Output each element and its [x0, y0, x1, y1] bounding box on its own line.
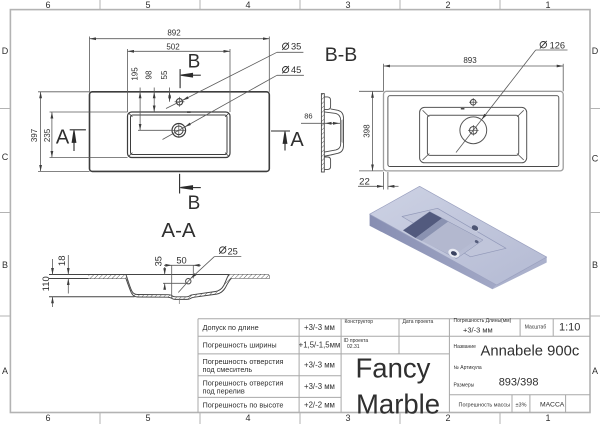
svg-text:2: 2 — [445, 413, 450, 423]
svg-text:2: 2 — [445, 0, 450, 10]
svg-text:22: 22 — [359, 176, 370, 187]
svg-text:+3/-3 мм: +3/-3 мм — [304, 323, 335, 332]
svg-text:35: 35 — [291, 42, 301, 52]
svg-text:Допуск по длине: Допуск по длине — [203, 323, 259, 332]
svg-text:126: 126 — [550, 40, 566, 50]
svg-text:A: A — [56, 127, 70, 149]
svg-text:397: 397 — [30, 128, 39, 142]
svg-text:Размеры: Размеры — [454, 383, 475, 389]
svg-text:±3%: ±3% — [516, 402, 527, 408]
svg-text:18: 18 — [57, 256, 68, 267]
svg-text:A: A — [2, 366, 8, 376]
svg-text:+2/-2 мм: +2/-2 мм — [304, 401, 335, 410]
svg-text:Marble: Marble — [356, 389, 440, 420]
svg-text:C: C — [592, 154, 599, 164]
svg-text:4: 4 — [245, 0, 250, 10]
svg-text:98: 98 — [145, 70, 154, 79]
svg-text:02.31: 02.31 — [347, 344, 360, 350]
svg-text:D: D — [2, 46, 9, 56]
svg-text:50: 50 — [176, 255, 186, 265]
svg-text:B: B — [592, 260, 598, 270]
svg-text:398: 398 — [362, 124, 371, 138]
svg-text:3: 3 — [345, 0, 350, 10]
svg-text:C: C — [2, 152, 9, 162]
svg-text:45: 45 — [291, 65, 301, 75]
svg-text:6: 6 — [45, 0, 50, 10]
svg-text:25: 25 — [228, 246, 238, 256]
svg-text:A: A — [290, 129, 304, 151]
svg-text:Fancy: Fancy — [356, 353, 431, 384]
svg-text:Дата проекта: Дата проекта — [403, 319, 434, 325]
svg-text:5: 5 — [145, 413, 150, 423]
svg-text:55: 55 — [160, 70, 169, 79]
svg-text:B-B: B-B — [325, 44, 358, 66]
svg-text:195: 195 — [131, 67, 140, 81]
svg-text:3: 3 — [345, 413, 350, 423]
svg-text:+3/-3 мм: +3/-3 мм — [304, 360, 335, 369]
svg-text:893/398: 893/398 — [499, 377, 539, 389]
svg-text:893: 893 — [463, 56, 477, 65]
svg-text:892: 892 — [167, 28, 181, 37]
svg-text:Погрешность массы: Погрешность массы — [459, 402, 511, 408]
svg-text:D: D — [592, 46, 599, 56]
svg-text:86: 86 — [304, 111, 312, 120]
svg-text:Погрешность ширины: Погрешность ширины — [203, 341, 277, 350]
svg-text:Annabele 900c: Annabele 900c — [481, 344, 580, 360]
svg-text:№ Артикула: № Артикула — [454, 365, 482, 371]
svg-text:B: B — [188, 193, 201, 214]
svg-text:+3/-3 мм: +3/-3 мм — [304, 382, 335, 391]
svg-text:5: 5 — [145, 0, 150, 10]
svg-text:+3/-3 мм: +3/-3 мм — [463, 325, 493, 334]
svg-text:1: 1 — [545, 0, 550, 10]
svg-text:1: 1 — [545, 413, 550, 423]
svg-text:Погрешность Длины(мм): Погрешность Длины(мм) — [454, 318, 512, 324]
svg-text:35: 35 — [154, 256, 164, 266]
svg-text:1:10: 1:10 — [559, 321, 580, 333]
svg-text:Погрешность по высоте: Погрешность по высоте — [203, 401, 284, 410]
svg-text:6: 6 — [45, 413, 50, 423]
svg-text:Конструктор: Конструктор — [345, 319, 374, 325]
svg-text:под смеситель: под смеситель — [203, 365, 253, 374]
svg-text:+1,5/-1,5мм: +1,5/-1,5мм — [299, 341, 341, 350]
svg-text:МАССА: МАССА — [540, 402, 565, 409]
svg-text:4: 4 — [245, 413, 250, 423]
svg-text:A-A: A-A — [161, 219, 196, 242]
svg-text:Масштаб: Масштаб — [525, 325, 547, 331]
svg-text:Название: Название — [454, 344, 477, 350]
svg-text:A: A — [592, 366, 598, 376]
svg-text:B: B — [188, 51, 201, 72]
svg-text:под перелив: под перелив — [203, 387, 245, 396]
svg-text:502: 502 — [166, 42, 180, 51]
svg-text:235: 235 — [43, 128, 52, 142]
svg-text:110: 110 — [41, 276, 52, 291]
svg-text:B: B — [2, 260, 8, 270]
